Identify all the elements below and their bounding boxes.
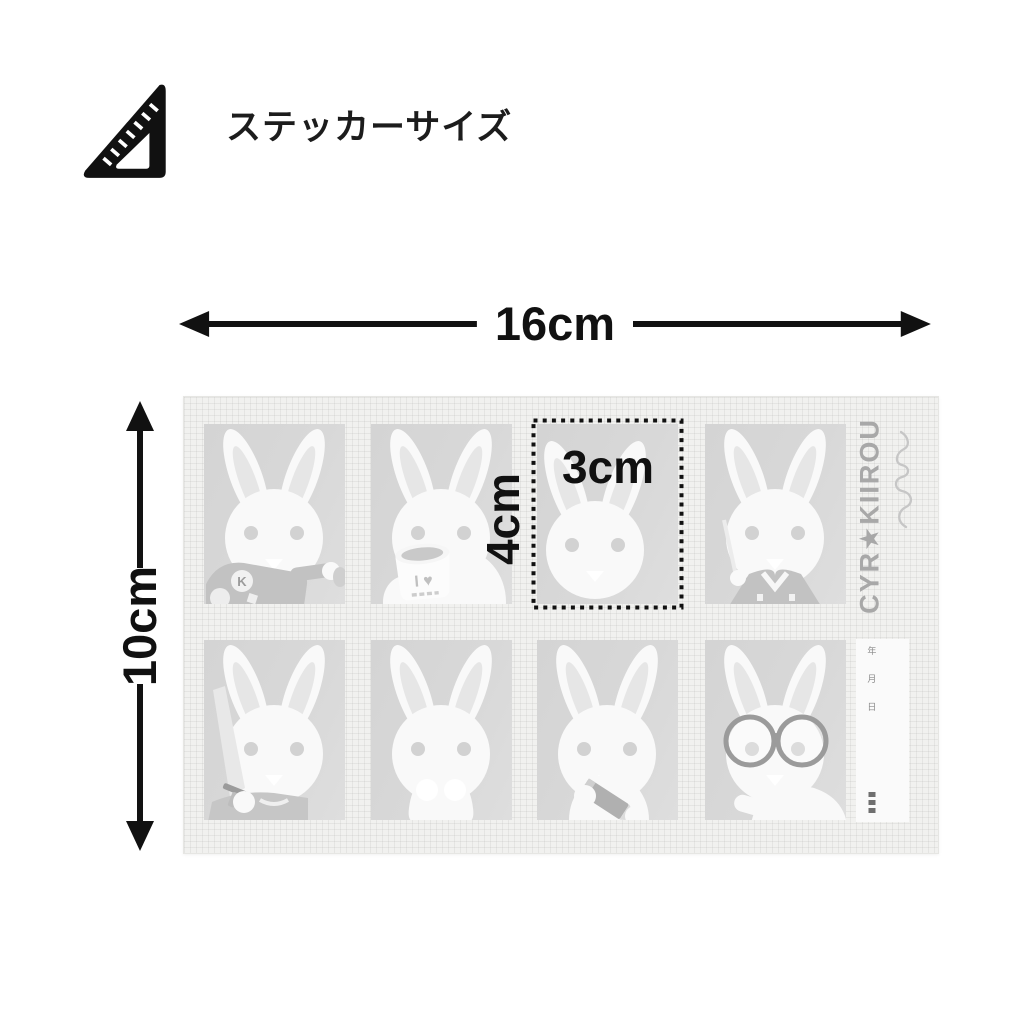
svg-text:I ♥: I ♥ (414, 572, 434, 591)
arrow-down-icon (114, 684, 166, 854)
arrow-right-icon (633, 307, 934, 341)
date-strip: 年月日 (856, 639, 909, 822)
rabbit-with-sword (204, 640, 345, 820)
sticker-width-label: 3cm (562, 440, 654, 494)
date-strip-footer-mark (868, 792, 875, 797)
signature-script (886, 425, 914, 533)
arrow-left-icon (176, 307, 477, 341)
date-strip-char: 月 (867, 675, 876, 684)
arrow-up-icon (114, 398, 166, 568)
date-strip-char: 年 (867, 647, 876, 656)
triangle-ruler-icon (78, 82, 180, 184)
height-dimension: 10cm (114, 398, 166, 854)
sticker-sheet: K I ♥ (183, 396, 939, 854)
rabbit-full-body (371, 640, 512, 820)
date-strip-char: 日 (867, 703, 876, 712)
date-strip-footer-mark (868, 808, 875, 813)
sticker-size-diagram: ステッカーサイズ 16cm 10cm (0, 0, 1024, 1024)
height-dimension-label: 10cm (114, 566, 166, 686)
rabbit-in-kimono (705, 424, 846, 604)
brand-text: CYR★KIIROU (855, 418, 886, 614)
rabbit-with-k-jacket: K (204, 424, 345, 604)
rabbit-with-glasses (705, 640, 846, 820)
sticker-height-label: 4cm (476, 473, 530, 565)
svg-text:K: K (237, 574, 247, 589)
width-dimension: 16cm (176, 298, 934, 350)
width-dimension-label: 16cm (489, 298, 621, 350)
rabbit-with-pencil (537, 640, 678, 820)
page-title: ステッカーサイズ (226, 104, 512, 152)
date-strip-footer-mark (868, 800, 875, 805)
